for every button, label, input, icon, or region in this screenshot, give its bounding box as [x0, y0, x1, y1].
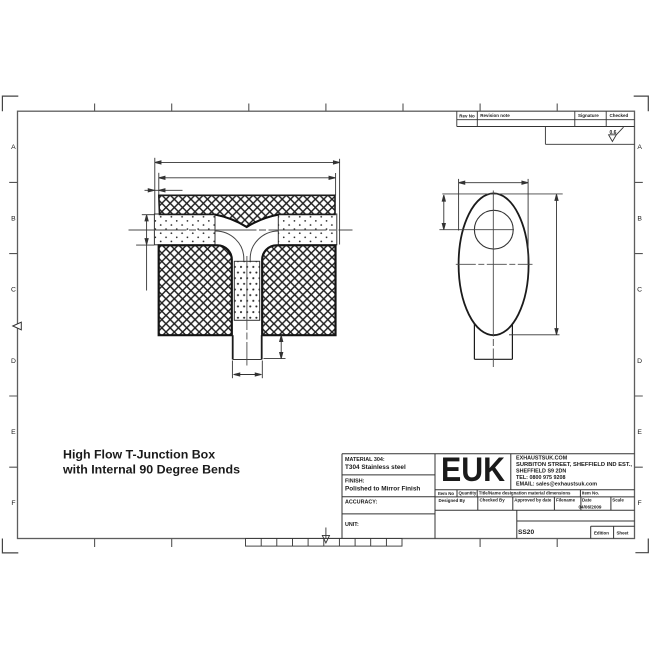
svg-text:Revision note: Revision note [480, 113, 510, 118]
svg-text:Checked By: Checked By [480, 498, 506, 503]
svg-text:High Flow T-Junction Box: High Flow T-Junction Box [63, 447, 215, 461]
svg-text:SS20: SS20 [518, 529, 534, 536]
svg-text:with Internal 90 Degree Bends: with Internal 90 Degree Bends [62, 463, 240, 477]
svg-text:Scale: Scale [612, 498, 624, 503]
svg-text:Edition: Edition [594, 531, 609, 536]
svg-text:Title/Name designation materia: Title/Name designation material dimensio… [479, 491, 571, 496]
svg-text:MATERIAL 304:: MATERIAL 304: [345, 457, 385, 463]
svg-text:D: D [637, 358, 642, 365]
svg-text:C: C [637, 287, 642, 294]
svg-text:SURBITON STREET, SHEFFIELD IND: SURBITON STREET, SHEFFIELD IND EST., [516, 462, 633, 468]
svg-text:D: D [11, 358, 16, 365]
svg-text:Polished to Mirror Finish: Polished to Mirror Finish [345, 485, 420, 492]
svg-text:Sheet: Sheet [617, 531, 629, 536]
svg-text:FINISH:: FINISH: [345, 479, 365, 485]
svg-text:C: C [11, 287, 16, 294]
svg-text:Item No.: Item No. [582, 491, 599, 496]
svg-text:F: F [638, 500, 642, 507]
svg-text:Designed By: Designed By [439, 498, 466, 503]
svg-text:SHEFFIELD S9 2DN: SHEFFIELD S9 2DN [516, 469, 566, 475]
svg-text:A: A [637, 144, 642, 151]
svg-text:EUK: EUK [441, 451, 505, 489]
svg-text:EMAIL: sales@exhaustsuk.com: EMAIL: sales@exhaustsuk.com [516, 482, 597, 488]
svg-text:Quantity: Quantity [459, 491, 477, 496]
svg-text:Filename: Filename [556, 498, 576, 503]
svg-text:T304 Stainless steel: T304 Stainless steel [345, 464, 406, 471]
svg-text:F: F [11, 500, 15, 507]
svg-text:B: B [11, 215, 16, 222]
svg-text:E: E [11, 429, 16, 436]
svg-text:Item No: Item No [438, 491, 454, 496]
svg-text:A: A [11, 144, 16, 151]
svg-text:Signature: Signature [578, 113, 599, 118]
svg-text:Checked: Checked [610, 113, 629, 118]
svg-text:EXHAUSTSUK.COM: EXHAUSTSUK.COM [516, 456, 568, 462]
svg-text:TEL: 0800 975 9208: TEL: 0800 975 9208 [516, 475, 565, 481]
svg-text:ACCURACY:: ACCURACY: [345, 500, 377, 506]
svg-text:E: E [637, 429, 642, 436]
svg-text:B: B [637, 215, 642, 222]
svg-text:UNIT:: UNIT: [345, 522, 359, 528]
svg-text:Approved by date: Approved by date [514, 498, 552, 503]
svg-text:Date: Date [582, 498, 592, 503]
svg-text:Rev No: Rev No [459, 113, 475, 118]
svg-text:04/06/2009: 04/06/2009 [579, 505, 602, 510]
